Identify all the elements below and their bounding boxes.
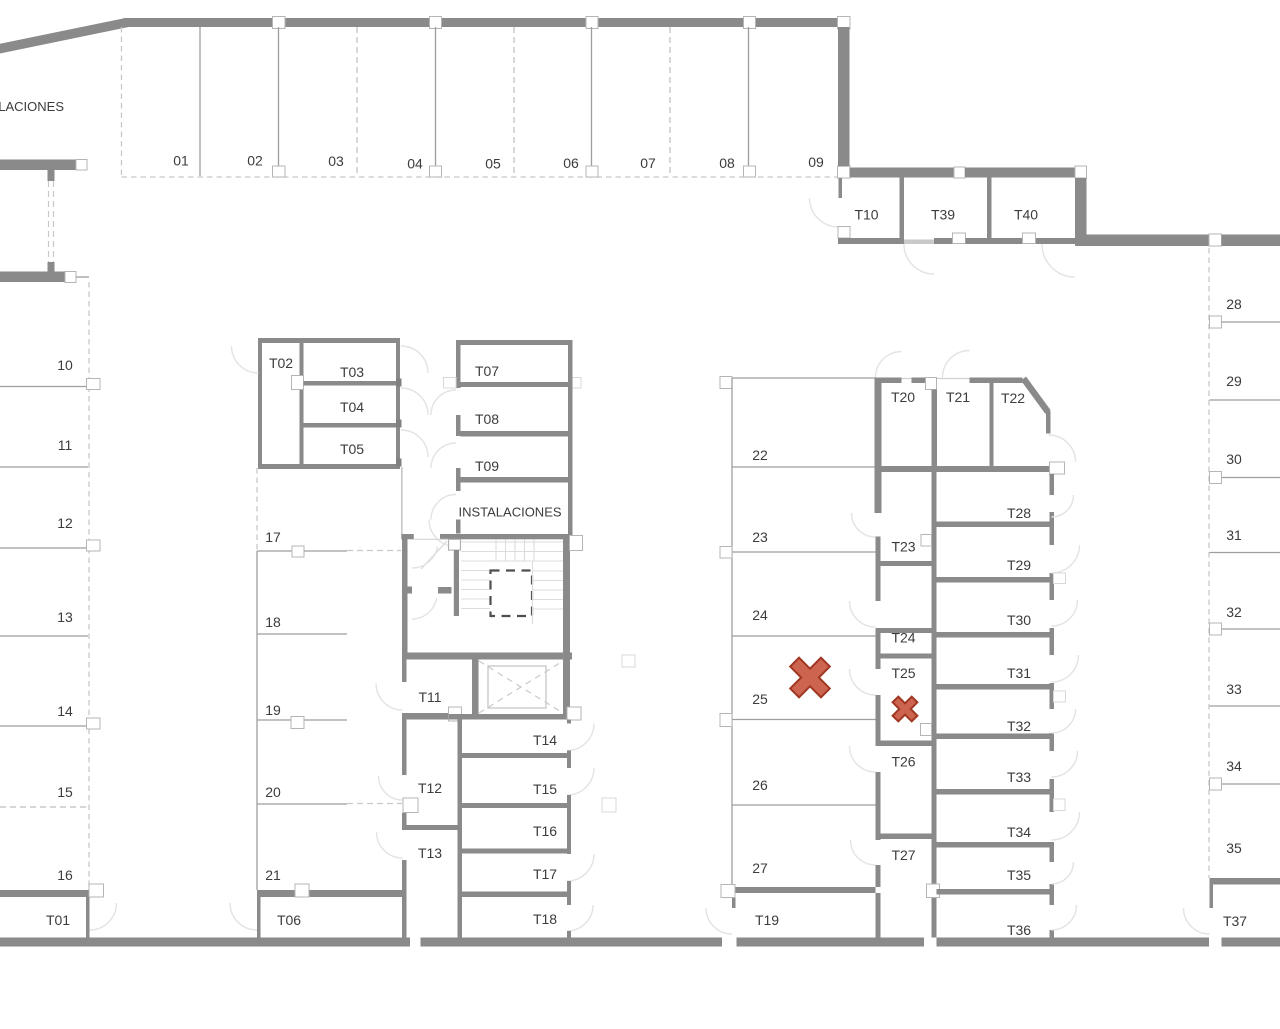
- svg-text:22: 22: [752, 447, 768, 463]
- svg-text:23: 23: [752, 529, 768, 545]
- svg-text:T20: T20: [891, 389, 915, 405]
- svg-text:T11: T11: [418, 689, 441, 705]
- svg-text:12: 12: [57, 515, 73, 531]
- svg-text:18: 18: [265, 614, 281, 630]
- svg-text:T10: T10: [854, 206, 878, 222]
- svg-text:T35: T35: [1007, 867, 1031, 883]
- svg-text:T01: T01: [46, 912, 70, 928]
- svg-text:34: 34: [1226, 758, 1242, 774]
- svg-text:26: 26: [752, 777, 768, 793]
- svg-text:33: 33: [1226, 681, 1242, 697]
- svg-text:T22: T22: [1001, 390, 1025, 406]
- svg-text:T15: T15: [533, 781, 557, 797]
- svg-text:T25: T25: [891, 665, 915, 681]
- svg-text:09: 09: [808, 154, 824, 170]
- svg-text:27: 27: [752, 860, 768, 876]
- svg-text:T04: T04: [340, 399, 364, 415]
- svg-text:T27: T27: [891, 847, 915, 863]
- svg-text:35: 35: [1226, 840, 1242, 856]
- svg-text:11: 11: [58, 437, 73, 453]
- svg-text:16: 16: [57, 867, 73, 883]
- svg-text:24: 24: [752, 607, 768, 623]
- svg-text:T12: T12: [418, 780, 442, 796]
- svg-text:T19: T19: [755, 912, 779, 928]
- svg-text:17: 17: [265, 529, 281, 545]
- svg-text:LACIONES: LACIONES: [0, 99, 64, 114]
- svg-text:32: 32: [1226, 604, 1242, 620]
- svg-text:31: 31: [1226, 527, 1242, 543]
- svg-text:T26: T26: [891, 753, 915, 769]
- svg-text:28: 28: [1226, 296, 1242, 312]
- svg-text:T33: T33: [1007, 769, 1031, 785]
- svg-text:T21: T21: [946, 389, 970, 405]
- svg-text:14: 14: [57, 703, 73, 719]
- svg-text:T37: T37: [1223, 913, 1247, 929]
- svg-text:T02: T02: [269, 355, 293, 371]
- svg-text:T07: T07: [475, 363, 499, 379]
- svg-text:29: 29: [1226, 373, 1242, 389]
- svg-text:T05: T05: [340, 441, 364, 457]
- svg-text:T39: T39: [931, 206, 955, 222]
- svg-text:21: 21: [265, 867, 281, 883]
- svg-text:10: 10: [57, 357, 73, 373]
- svg-text:T24: T24: [891, 629, 915, 645]
- svg-text:T03: T03: [340, 364, 364, 380]
- svg-text:T08: T08: [475, 411, 499, 427]
- svg-text:T14: T14: [533, 732, 557, 748]
- svg-text:13: 13: [57, 609, 73, 625]
- svg-text:T32: T32: [1007, 718, 1031, 734]
- svg-text:20: 20: [265, 784, 281, 800]
- svg-text:04: 04: [407, 155, 423, 171]
- svg-text:08: 08: [719, 155, 735, 171]
- svg-text:T16: T16: [533, 823, 557, 839]
- svg-text:T13: T13: [418, 845, 442, 861]
- svg-text:03: 03: [328, 153, 344, 169]
- svg-text:06: 06: [563, 155, 579, 171]
- svg-text:05: 05: [485, 155, 501, 171]
- svg-text:T28: T28: [1007, 505, 1031, 521]
- svg-text:T34: T34: [1007, 824, 1031, 840]
- svg-text:01: 01: [173, 152, 189, 168]
- svg-text:15: 15: [57, 784, 73, 800]
- svg-text:19: 19: [265, 702, 281, 718]
- svg-text:T17: T17: [533, 866, 557, 882]
- svg-text:02: 02: [247, 152, 263, 168]
- svg-text:T36: T36: [1007, 922, 1031, 938]
- svg-text:INSTALACIONES: INSTALACIONES: [458, 504, 561, 519]
- svg-text:30: 30: [1226, 451, 1242, 467]
- svg-text:25: 25: [752, 691, 768, 707]
- svg-text:T18: T18: [533, 911, 557, 927]
- svg-text:T30: T30: [1007, 612, 1031, 628]
- svg-text:07: 07: [640, 155, 656, 171]
- svg-text:T23: T23: [891, 538, 915, 554]
- svg-text:T09: T09: [475, 458, 499, 474]
- svg-text:T31: T31: [1007, 665, 1031, 681]
- svg-text:T40: T40: [1014, 206, 1038, 222]
- svg-text:T29: T29: [1007, 557, 1031, 573]
- svg-text:T06: T06: [277, 912, 301, 928]
